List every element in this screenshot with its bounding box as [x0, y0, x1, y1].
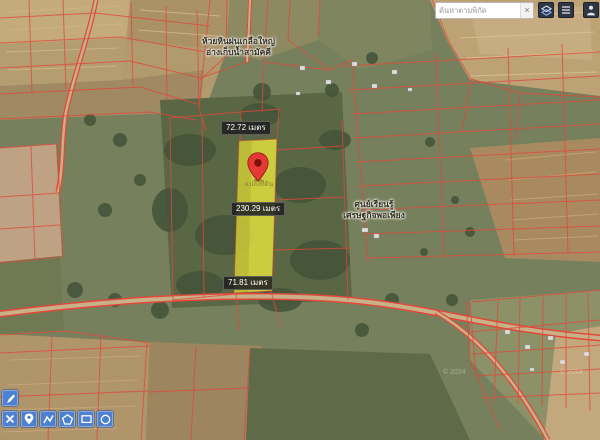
circle-tool-button[interactable]	[97, 411, 113, 427]
polyline-tool-button[interactable]	[40, 411, 56, 427]
list-icon	[561, 5, 571, 15]
clear-search-button[interactable]: ×	[520, 3, 533, 18]
pin-icon	[247, 152, 269, 182]
polygon-icon	[62, 414, 73, 425]
x-icon	[5, 414, 15, 424]
circle-icon	[100, 414, 111, 425]
person-icon	[586, 5, 596, 16]
list-button[interactable]	[558, 2, 574, 18]
delete-tool-button[interactable]	[2, 411, 18, 427]
person-button[interactable]	[583, 2, 599, 18]
map-viewer: ห้วยหินฝนเกลือใหญ่ อ่างเก็บน้ำสามัคคี ศู…	[0, 0, 600, 440]
pen-icon	[5, 393, 16, 404]
rectangle-icon	[81, 414, 92, 424]
location-marker[interactable]	[247, 152, 269, 182]
search-box: ×	[435, 2, 534, 19]
marker-tool-button[interactable]	[21, 411, 37, 427]
pin-icon	[24, 413, 34, 425]
polygon-tool-button[interactable]	[59, 411, 75, 427]
polyline-icon	[43, 414, 54, 424]
edit-tool-button[interactable]	[2, 390, 18, 406]
layers-icon	[541, 5, 552, 16]
layers-button[interactable]	[538, 2, 554, 18]
measurement-bottom-width: 71.81 เมตร	[223, 276, 273, 290]
measurement-top-width: 72.72 เมตร	[221, 121, 271, 135]
satellite-map[interactable]	[0, 0, 600, 440]
draw-toolbar	[2, 411, 113, 427]
rectangle-tool-button[interactable]	[78, 411, 94, 427]
search-input[interactable]	[436, 6, 520, 15]
measurement-length: 230.29 เมตร	[231, 202, 285, 216]
search-bar: ×	[435, 2, 599, 19]
